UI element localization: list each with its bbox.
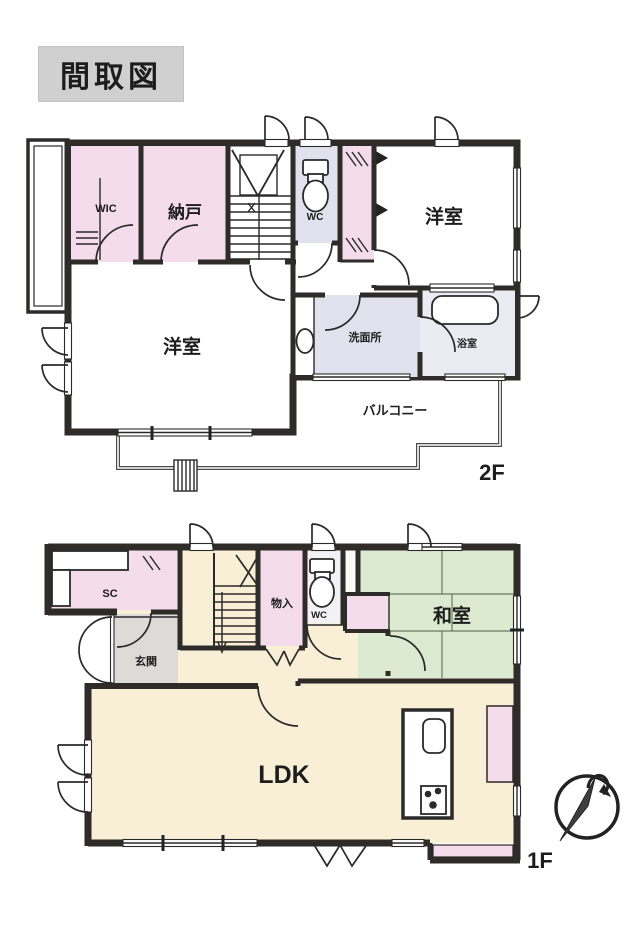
washing-machine-icon [297, 329, 314, 353]
floor1-label: 1F [527, 848, 553, 873]
room-wc-1f-label: WC [311, 610, 327, 621]
room-genkan-label: 玄関 [135, 654, 157, 668]
kitchen-counter [487, 706, 513, 782]
room-sc-label: SC [102, 588, 117, 600]
closet-washitsu [345, 594, 388, 631]
room-genkan [114, 614, 178, 684]
room-nando-label: 納戸 [168, 202, 202, 222]
exterior-hatch [174, 460, 197, 491]
floor-plan-canvas: WIC 納戸 WC 洋室 洋室 洗面所 浴室 バルコニー 2F [0, 0, 640, 931]
toilet-icon-2f [303, 160, 328, 212]
floor2-label: 2F [479, 460, 505, 485]
floor-plan-page: 間取図 [0, 0, 640, 931]
kitchen-island-icon [403, 710, 452, 818]
floor1-plan: SC 玄関 物入 WC 和室 LDK 1F [44, 524, 618, 873]
roof-annex-outline [28, 140, 68, 312]
room-ldk-label: LDK [258, 761, 309, 789]
room-wc-2f-label: WC [307, 212, 324, 223]
balcony-rail [118, 378, 500, 468]
room-senmenjo-label: 洗面所 [349, 330, 382, 344]
balcony-label: バルコニー [363, 403, 428, 418]
room-wic-label: WIC [95, 203, 116, 215]
room-monoire-label: 物入 [271, 596, 293, 610]
stove-icon [421, 786, 446, 814]
terrace-step [433, 845, 513, 857]
bathtub-icon [432, 296, 498, 324]
compass-icon [556, 775, 618, 841]
toilet-icon-1f [310, 559, 334, 607]
porch-area [44, 614, 110, 688]
floor2-plan: WIC 納戸 WC 洋室 洋室 洗面所 浴室 バルコニー 2F [28, 116, 539, 491]
room-yokushitsu-label: 浴室 [457, 337, 477, 350]
room-yoshitsu-lower-label: 洋室 [163, 335, 201, 358]
room-yoshitsu-upper-label: 洋室 [425, 205, 463, 228]
sink-icon [423, 719, 445, 753]
stairs-2f-icon [230, 150, 291, 260]
room-washitsu-label: 和室 [433, 604, 471, 627]
